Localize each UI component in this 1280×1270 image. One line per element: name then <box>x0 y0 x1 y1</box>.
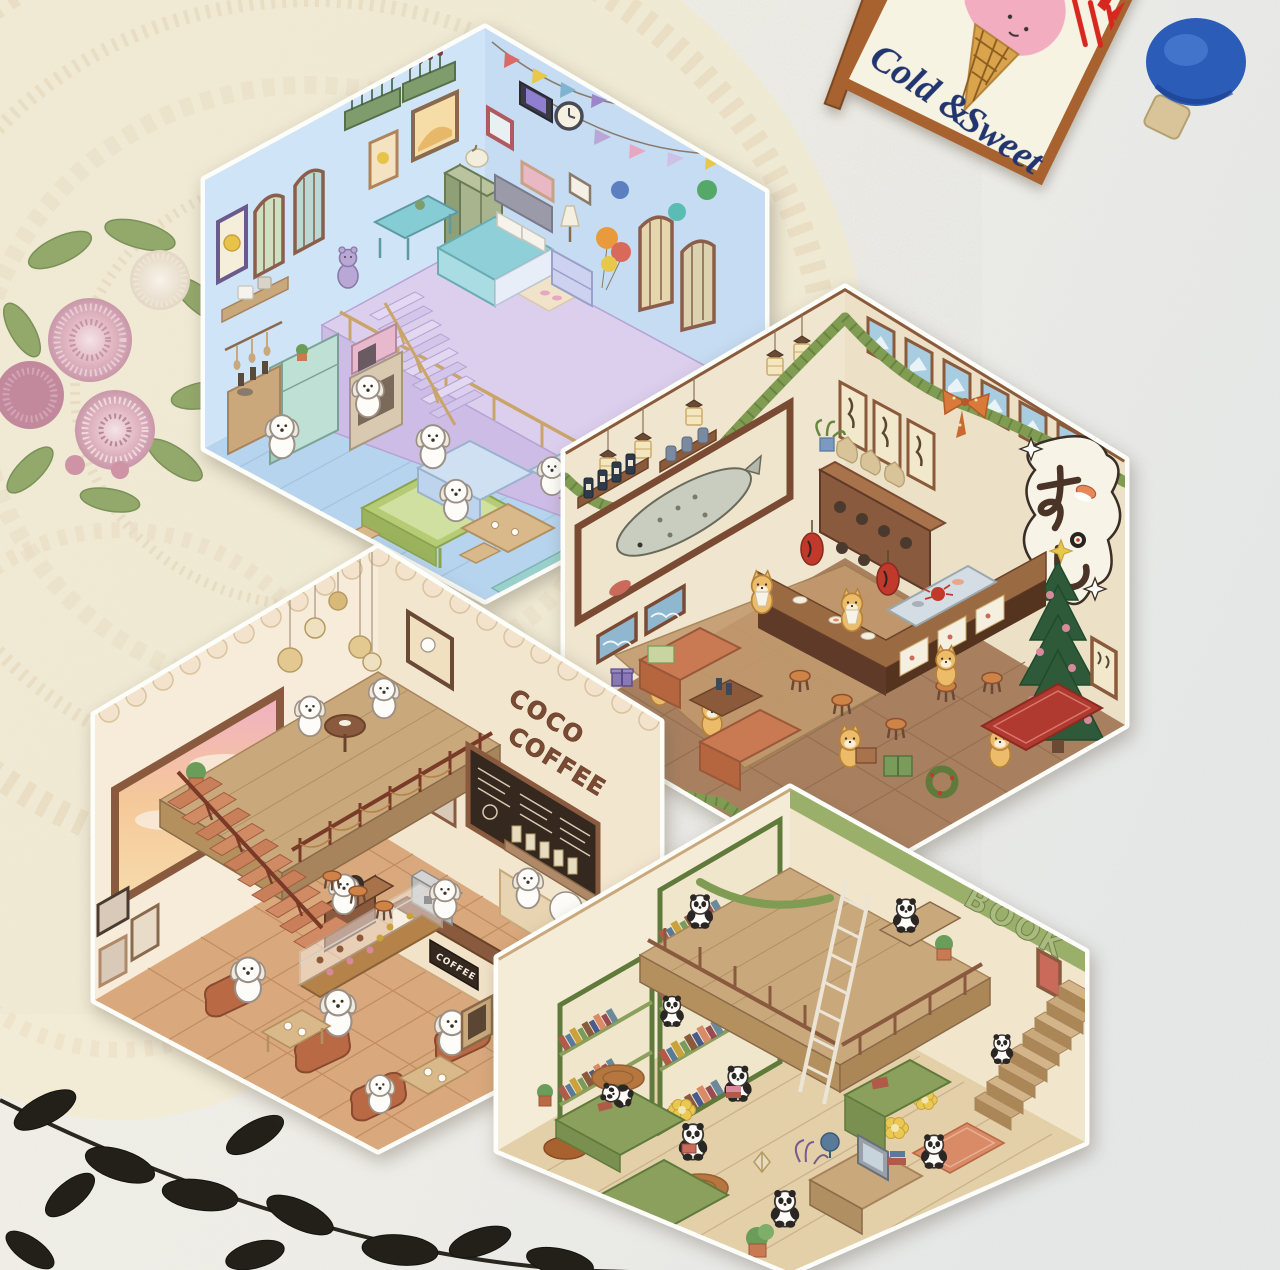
product-photo: すし <box>0 0 1280 1270</box>
teddy-bear <box>338 247 358 288</box>
